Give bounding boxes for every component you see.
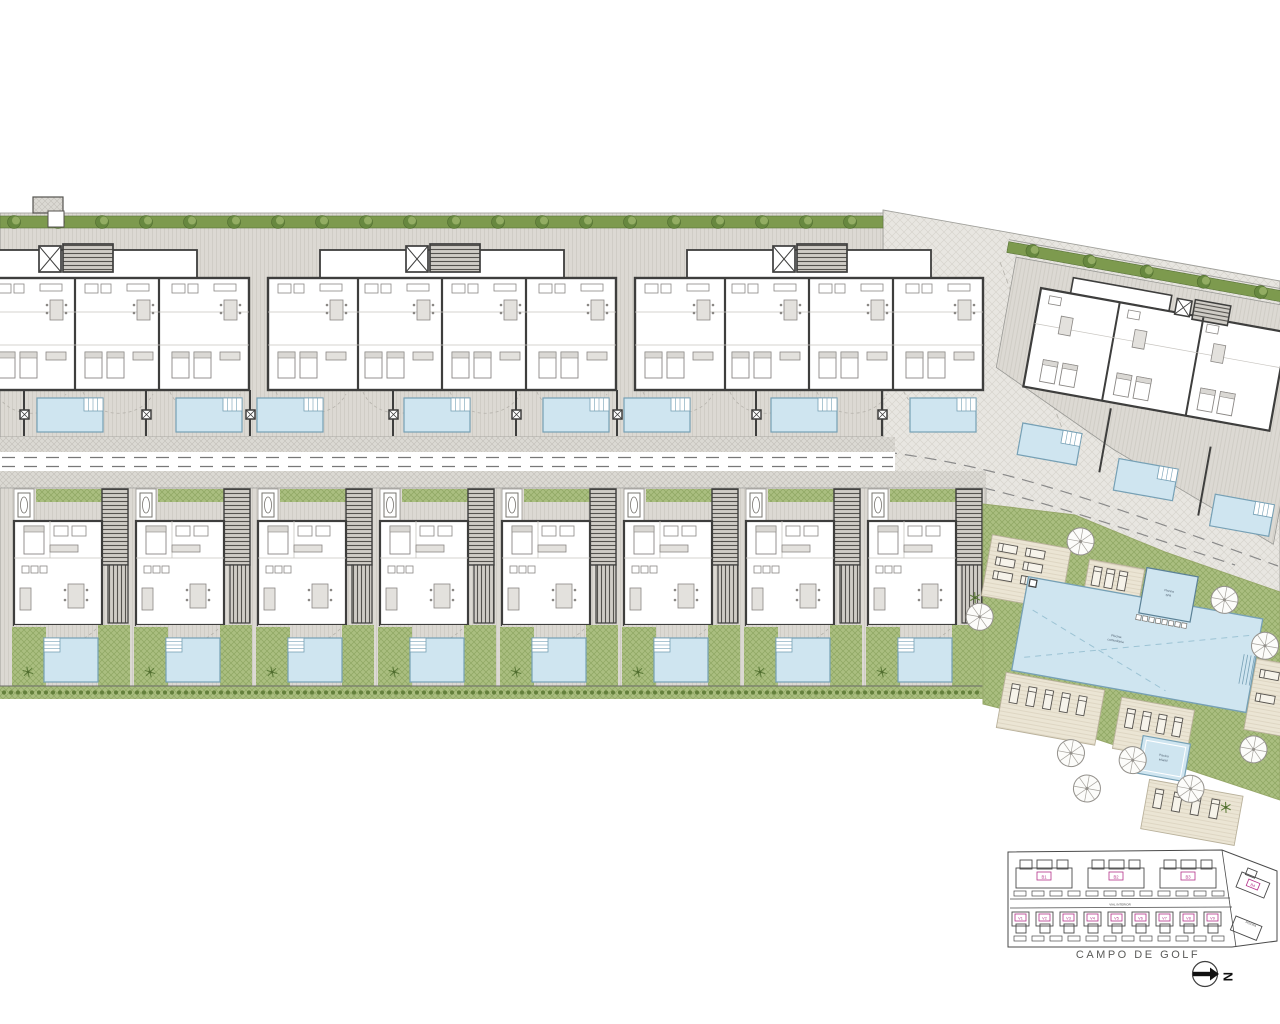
spa-pool: PiscinaSPA [1136, 567, 1199, 629]
villa-stairs [468, 489, 494, 565]
dining-table [871, 300, 884, 320]
garden-strip [220, 625, 252, 686]
site-plan-page: PiscinacomunitariaPiscinaSPAPiscinainfan… [0, 0, 1280, 1024]
keyplan-road-label: VIAL INTERIOR [1109, 903, 1131, 907]
site-plan-drawing: PiscinacomunitariaPiscinaSPAPiscinainfan… [0, 0, 1280, 1024]
dining-table [591, 300, 604, 320]
entry-planting [646, 489, 712, 502]
tree-icon [228, 216, 241, 229]
wardrobe [782, 545, 810, 552]
tree-icon [580, 216, 593, 229]
sofa [20, 588, 31, 610]
private-pool [771, 398, 837, 432]
hedge-strip [0, 216, 883, 228]
wardrobe [172, 545, 200, 552]
villa-pool [166, 638, 220, 682]
tree-icon [756, 216, 769, 229]
dining-table [50, 300, 63, 320]
villa-pool [288, 638, 342, 682]
entry-planting [890, 489, 956, 502]
villa-stairs [596, 565, 616, 623]
keyplan-villa-label: V2 [1042, 917, 1047, 921]
interior-road [0, 437, 986, 488]
road-surface [0, 452, 895, 471]
villa-pool [654, 638, 708, 682]
private-pool [543, 398, 609, 432]
villa-pool [776, 638, 830, 682]
wardrobe [46, 352, 66, 360]
spa-tile [1142, 616, 1148, 622]
spa-tile [1181, 623, 1187, 629]
umbrella-icon [1071, 773, 1102, 804]
villa-stairs [712, 489, 738, 565]
dining-table [958, 300, 971, 320]
campo-de-golf-caption: CAMPO DE GOLF [1076, 949, 1200, 961]
pool-ladder [1029, 579, 1037, 587]
wardrobe [500, 352, 520, 360]
dining-table [1211, 344, 1226, 364]
dining-table [417, 300, 430, 320]
dining-table [190, 584, 206, 608]
villa-stairs [352, 565, 372, 623]
apartment-block [268, 244, 616, 413]
private-pool [910, 398, 976, 432]
wardrobe [413, 352, 433, 360]
entry-planting [36, 489, 102, 502]
tree-icon [96, 216, 109, 229]
dining-table [224, 300, 237, 320]
private-pool [37, 398, 103, 432]
villa-stairs [230, 565, 250, 623]
tree-icon [140, 216, 153, 229]
entry-planting [280, 489, 346, 502]
sofa [630, 588, 641, 610]
wardrobe [780, 352, 800, 360]
private-pool [404, 398, 470, 432]
dining-table [330, 300, 343, 320]
tree-icon [316, 216, 329, 229]
keyplan-villa-label: V9 [1210, 917, 1215, 921]
entry-planting [768, 489, 834, 502]
wardrobe [326, 352, 346, 360]
apartment-block [635, 244, 983, 413]
tree-icon [624, 216, 637, 229]
sidewalk-lower [0, 471, 986, 488]
dining-table [922, 584, 938, 608]
garden-strip [830, 625, 862, 686]
sofa [752, 588, 763, 610]
dining-table [800, 584, 816, 608]
wardrobe [133, 352, 153, 360]
dining-table [678, 584, 694, 608]
keyplan-villa-label: V8 [1186, 917, 1191, 921]
villa-stairs [474, 565, 494, 623]
stair-core [797, 244, 847, 272]
dining-table [137, 300, 150, 320]
dining-table [434, 584, 450, 608]
stair-core [430, 244, 480, 272]
dining-table [1058, 316, 1073, 336]
garden-strip [708, 625, 740, 686]
north-arrow-shaft [1193, 972, 1210, 976]
tree-icon [184, 216, 197, 229]
wardrobe [294, 545, 322, 552]
sofa [508, 588, 519, 610]
wardrobe [693, 352, 713, 360]
tree-icon [272, 216, 285, 229]
keyplan-building-label: B2 [1113, 874, 1119, 879]
utility-structure [48, 211, 64, 227]
tree-icon [712, 216, 725, 229]
tree-icon [492, 216, 505, 229]
keyplan-villa-label: V4 [1090, 917, 1095, 921]
tree-icon [404, 216, 417, 229]
spa-tile [1149, 617, 1155, 623]
private-pool [257, 398, 323, 432]
spa-tile [1155, 618, 1161, 624]
tree-icon [668, 216, 681, 229]
spa-tile [1162, 619, 1168, 625]
dining-table [504, 300, 517, 320]
keyplan-villa-label: V3 [1066, 917, 1071, 921]
villa-stairs [102, 489, 128, 565]
tree-icon [800, 216, 813, 229]
keyplan-villa-label: V1 [1018, 917, 1023, 921]
garden-strip [586, 625, 618, 686]
private-pool [176, 398, 242, 432]
keyplan-building-label: B3 [1185, 874, 1191, 879]
entry-planting [402, 489, 468, 502]
villa-pool [44, 638, 98, 682]
sofa [874, 588, 885, 610]
wardrobe [50, 545, 78, 552]
tree-icon [448, 216, 461, 229]
wardrobe [904, 545, 932, 552]
tree-icon [8, 216, 21, 229]
upper-apartment-strip [0, 197, 983, 437]
north-letter: N [1221, 972, 1236, 981]
wardrobe [867, 352, 887, 360]
dining-table [1132, 329, 1147, 349]
tree-icon [536, 216, 549, 229]
entry-planting [524, 489, 590, 502]
dining-table [68, 584, 84, 608]
sofa [386, 588, 397, 610]
dining-table [556, 584, 572, 608]
spa-tile [1168, 620, 1174, 626]
sidewalk-upper [0, 437, 895, 452]
spa-tile [1175, 622, 1181, 628]
key-plan: B1B2B3V1V2V3V4V5V6V7V8V9B4 [1008, 850, 1277, 947]
villa-row [0, 488, 986, 699]
dining-table [312, 584, 328, 608]
wardrobe [660, 545, 688, 552]
villa-stairs [346, 489, 372, 565]
sofa [264, 588, 275, 610]
villa-pool [410, 638, 464, 682]
private-pool [624, 398, 690, 432]
sofa [142, 588, 153, 610]
villa-stairs [590, 489, 616, 565]
villa-stairs [718, 565, 738, 623]
dining-table [697, 300, 710, 320]
villa-stairs [224, 489, 250, 565]
villa-stairs [840, 565, 860, 623]
villa-pool [898, 638, 952, 682]
villa-stairs [956, 489, 982, 565]
entry-planting [158, 489, 224, 502]
wardrobe [538, 545, 566, 552]
wardrobe [587, 352, 607, 360]
tree-icon [844, 216, 857, 229]
villa-stairs [108, 565, 128, 623]
keyplan-villa-label: V7 [1162, 917, 1167, 921]
villa-pool [532, 638, 586, 682]
wardrobe [416, 545, 444, 552]
garden-strip [98, 625, 130, 686]
garden-strip [952, 625, 984, 686]
wardrobe [954, 352, 974, 360]
garden-strip [464, 625, 496, 686]
dining-table [784, 300, 797, 320]
keyplan-building-label: B1 [1041, 874, 1047, 879]
spa-tile [1136, 615, 1142, 621]
tree-icon [360, 216, 373, 229]
keyplan-villa-label: V6 [1138, 917, 1143, 921]
stair-core [63, 244, 113, 272]
garden-strip [342, 625, 374, 686]
wardrobe [220, 352, 240, 360]
villa-stairs [834, 489, 860, 565]
keyplan-villa-label: V5 [1114, 917, 1119, 921]
